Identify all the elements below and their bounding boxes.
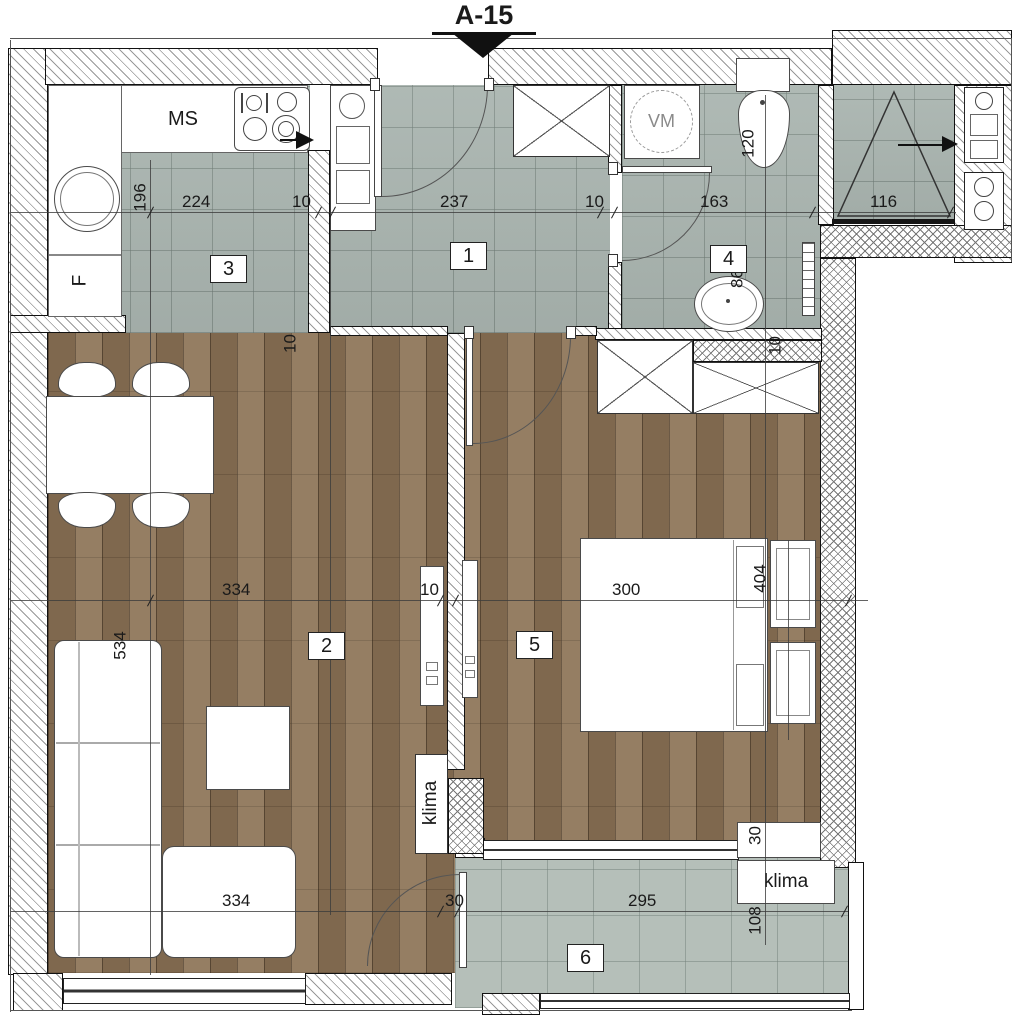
bath-door-leaf <box>622 166 712 173</box>
dim-line-v3 <box>765 95 766 945</box>
hall-bath-wall-top <box>608 85 622 173</box>
bedroom-exterior-wall <box>820 258 856 868</box>
dim-wall-hb: 10 <box>585 192 604 212</box>
stove-burner-3 <box>243 117 267 141</box>
dim-hall-width: 237 <box>440 192 468 212</box>
bedroom-top-insulation <box>693 340 822 362</box>
dim-kitchen-depth: 196 <box>132 176 149 220</box>
bed-headboard-line <box>733 540 734 730</box>
room-number-bath: 4 <box>710 245 747 273</box>
tv-unit-living-detail-2 <box>426 676 438 685</box>
dim-line-v2 <box>330 190 331 915</box>
kitchen-hall-wall <box>308 150 330 333</box>
fridge-label: F <box>72 259 89 303</box>
kitchen-direction-arrow-stem <box>280 139 296 141</box>
bedroom-wardrobe-2 <box>693 362 819 414</box>
pillow-2 <box>736 664 764 726</box>
bedroom-wardrobe-1 <box>597 340 693 414</box>
stove-burner-2 <box>277 92 297 112</box>
left-exterior-wall <box>8 48 48 975</box>
nightstand-2-inner <box>776 650 810 716</box>
stove-bracket-right <box>266 93 268 113</box>
hall-bedroom-wall-stub <box>573 326 597 336</box>
section-arrow-icon <box>452 33 514 58</box>
dim-line-v1 <box>150 160 151 975</box>
door-post <box>608 162 618 175</box>
room-number-hall: 1 <box>450 242 487 270</box>
contour-bottom <box>10 1010 852 1011</box>
dim-bedroom-width: 300 <box>612 580 640 600</box>
door-post <box>566 326 576 339</box>
room-number-living-text: 2 <box>321 635 332 658</box>
door-post <box>464 326 474 339</box>
dining-chair-1 <box>58 362 116 398</box>
bottom-wall-mid-pier <box>305 973 452 1005</box>
sofa-back-line <box>78 642 80 956</box>
hall-bath-wall-bottom <box>608 262 622 333</box>
dim-terrace-door: 30 <box>445 891 464 911</box>
room-number-terrace-text: 6 <box>580 947 591 970</box>
room-number-bath-text: 4 <box>723 248 734 271</box>
kitchen-unit-label: MS <box>168 108 198 131</box>
contour-right <box>1011 38 1012 262</box>
room-number-terrace: 6 <box>567 944 604 972</box>
dim-living-depth: 534 <box>112 624 129 668</box>
dim-kitchen-width: 224 <box>182 192 210 212</box>
hall-living-wall-left <box>330 326 448 336</box>
room-number-kitchen-text: 3 <box>223 258 234 281</box>
tv-unit-living-detail-1 <box>426 662 438 671</box>
tv-unit-bedroom-detail-2 <box>465 670 475 678</box>
living-bedroom-divider-wall <box>447 333 465 770</box>
floor-plan: VM <box>0 0 1024 1018</box>
door-post <box>484 78 494 91</box>
terrace-bottom-pier <box>482 993 540 1015</box>
top-wall-left <box>45 48 378 85</box>
dim-line-top <box>10 212 956 213</box>
dim-wall-lb: 10 <box>420 580 439 600</box>
bath-bottom-wall <box>595 328 822 340</box>
room-number-living: 2 <box>308 632 345 660</box>
dim-bath-wall: 10 <box>767 324 784 368</box>
room-number-bedroom-text: 5 <box>529 634 540 657</box>
dim-shower-width: 116 <box>870 192 897 212</box>
room-number-bedroom: 5 <box>516 631 553 659</box>
kitchen-bottom-left-wall <box>10 315 126 333</box>
ac-wall-block <box>448 778 484 854</box>
entry-cabinet-drawer-2 <box>336 170 370 204</box>
dim-wall-kh: 10 <box>292 192 311 212</box>
terrace-right-wall <box>848 862 864 1010</box>
dim-bedroom-depth: 404 <box>752 557 769 601</box>
shaft-2-pipe-1 <box>974 177 994 197</box>
washing-machine-label: VM <box>648 111 675 132</box>
ac-unit-terrace: klima <box>737 860 835 904</box>
bottom-wall-left-pier <box>13 973 63 1011</box>
dim-bath-width: 163 <box>700 192 728 212</box>
shower-arrow-stem <box>898 144 944 146</box>
sofa-cushion-line-2 <box>56 844 160 846</box>
dim-line-bottom <box>10 911 848 912</box>
door-post <box>608 254 618 267</box>
shaft-1-pipe <box>975 92 993 110</box>
kitchen-sink-inner <box>60 172 114 226</box>
stove-burner-4-inner <box>278 121 294 137</box>
section-title: A-15 <box>432 0 536 35</box>
ac-living-label: klima <box>420 775 442 831</box>
coffee-table <box>206 706 290 790</box>
dim-terrace-width: 295 <box>628 891 656 911</box>
entrance-door-leaf <box>374 85 382 197</box>
kitchen-direction-arrow-icon <box>296 131 314 149</box>
dim-line-v4 <box>788 540 789 740</box>
dim-living-width: 334 <box>222 580 250 600</box>
entry-cabinet-basin <box>339 93 365 119</box>
dim-terrace-depth: 108 <box>747 899 764 943</box>
tv-unit-bedroom-detail-1 <box>465 656 475 664</box>
living-room-window <box>63 978 306 1004</box>
stove-bracket-left <box>241 93 243 113</box>
fridge-divider-line <box>49 254 121 256</box>
entry-cabinet-drawer-1 <box>336 126 370 164</box>
shaft-1-duct-1 <box>970 114 998 136</box>
toilet-tank <box>736 58 790 92</box>
nightstand-1-inner <box>776 548 810 620</box>
door-post <box>370 78 380 91</box>
shaft-2-pipe-2 <box>974 201 994 221</box>
stove-burner-1 <box>246 95 262 111</box>
dim-ac-niche: 30 <box>747 814 764 858</box>
dim-floor-gap: 10 <box>282 322 299 366</box>
dim-toilet-depth: 120 <box>740 122 757 166</box>
sofa-cushion-line-1 <box>56 742 160 744</box>
dining-chair-2 <box>132 362 190 398</box>
washing-machine-drum: VM <box>630 90 693 153</box>
dim-sofa-width: 334 <box>222 891 250 911</box>
dining-table <box>46 396 214 494</box>
terrace-door-leaf <box>459 872 467 968</box>
radiator-icon <box>802 242 815 316</box>
hall-wardrobe <box>513 85 610 157</box>
room-number-kitchen: 3 <box>210 255 247 283</box>
bedroom-window <box>483 840 739 860</box>
room-number-hall-text: 1 <box>463 245 474 268</box>
contour-left <box>10 40 11 1012</box>
shower-arrow-icon <box>942 136 958 152</box>
terrace-railing <box>540 993 850 1009</box>
bedroom-door-leaf <box>466 336 473 446</box>
shaft-1-duct-2 <box>970 140 998 159</box>
ac-terrace-label: klima <box>764 871 808 893</box>
